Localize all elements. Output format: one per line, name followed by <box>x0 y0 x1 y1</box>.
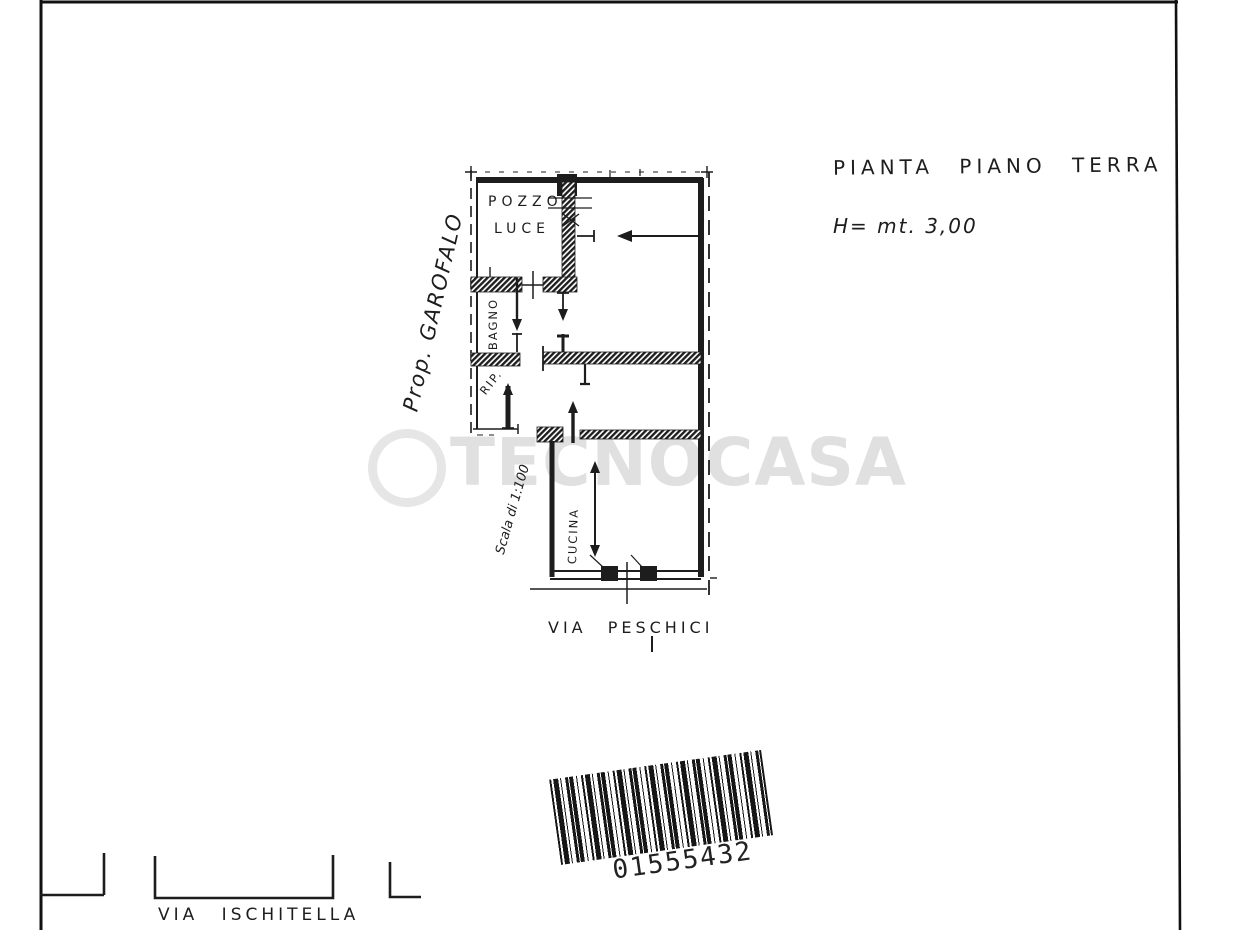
room-label-bagno: BAGNO <box>486 294 500 354</box>
scanned-floorplan-page: TECNOCASA <box>0 0 1241 930</box>
plan-title-note: PIANTA PIANO TERRA <box>833 152 1163 179</box>
room-label-cucina: CUCINA <box>565 501 581 571</box>
room-label-pozzo-luce-line2: LUCE <box>494 221 550 237</box>
street-label-via-peschici: VIA PESCHICI <box>548 618 713 637</box>
room-label-pozzo-luce-line1: POZZO <box>488 194 563 210</box>
ceiling-height-note: H= mt. 3,00 <box>833 214 978 238</box>
street-blocks-via-ischitella <box>40 853 421 898</box>
street-label-via-ischitella: VIA ISCHITELLA <box>158 905 359 925</box>
plan-dimension-arrows <box>502 230 699 557</box>
